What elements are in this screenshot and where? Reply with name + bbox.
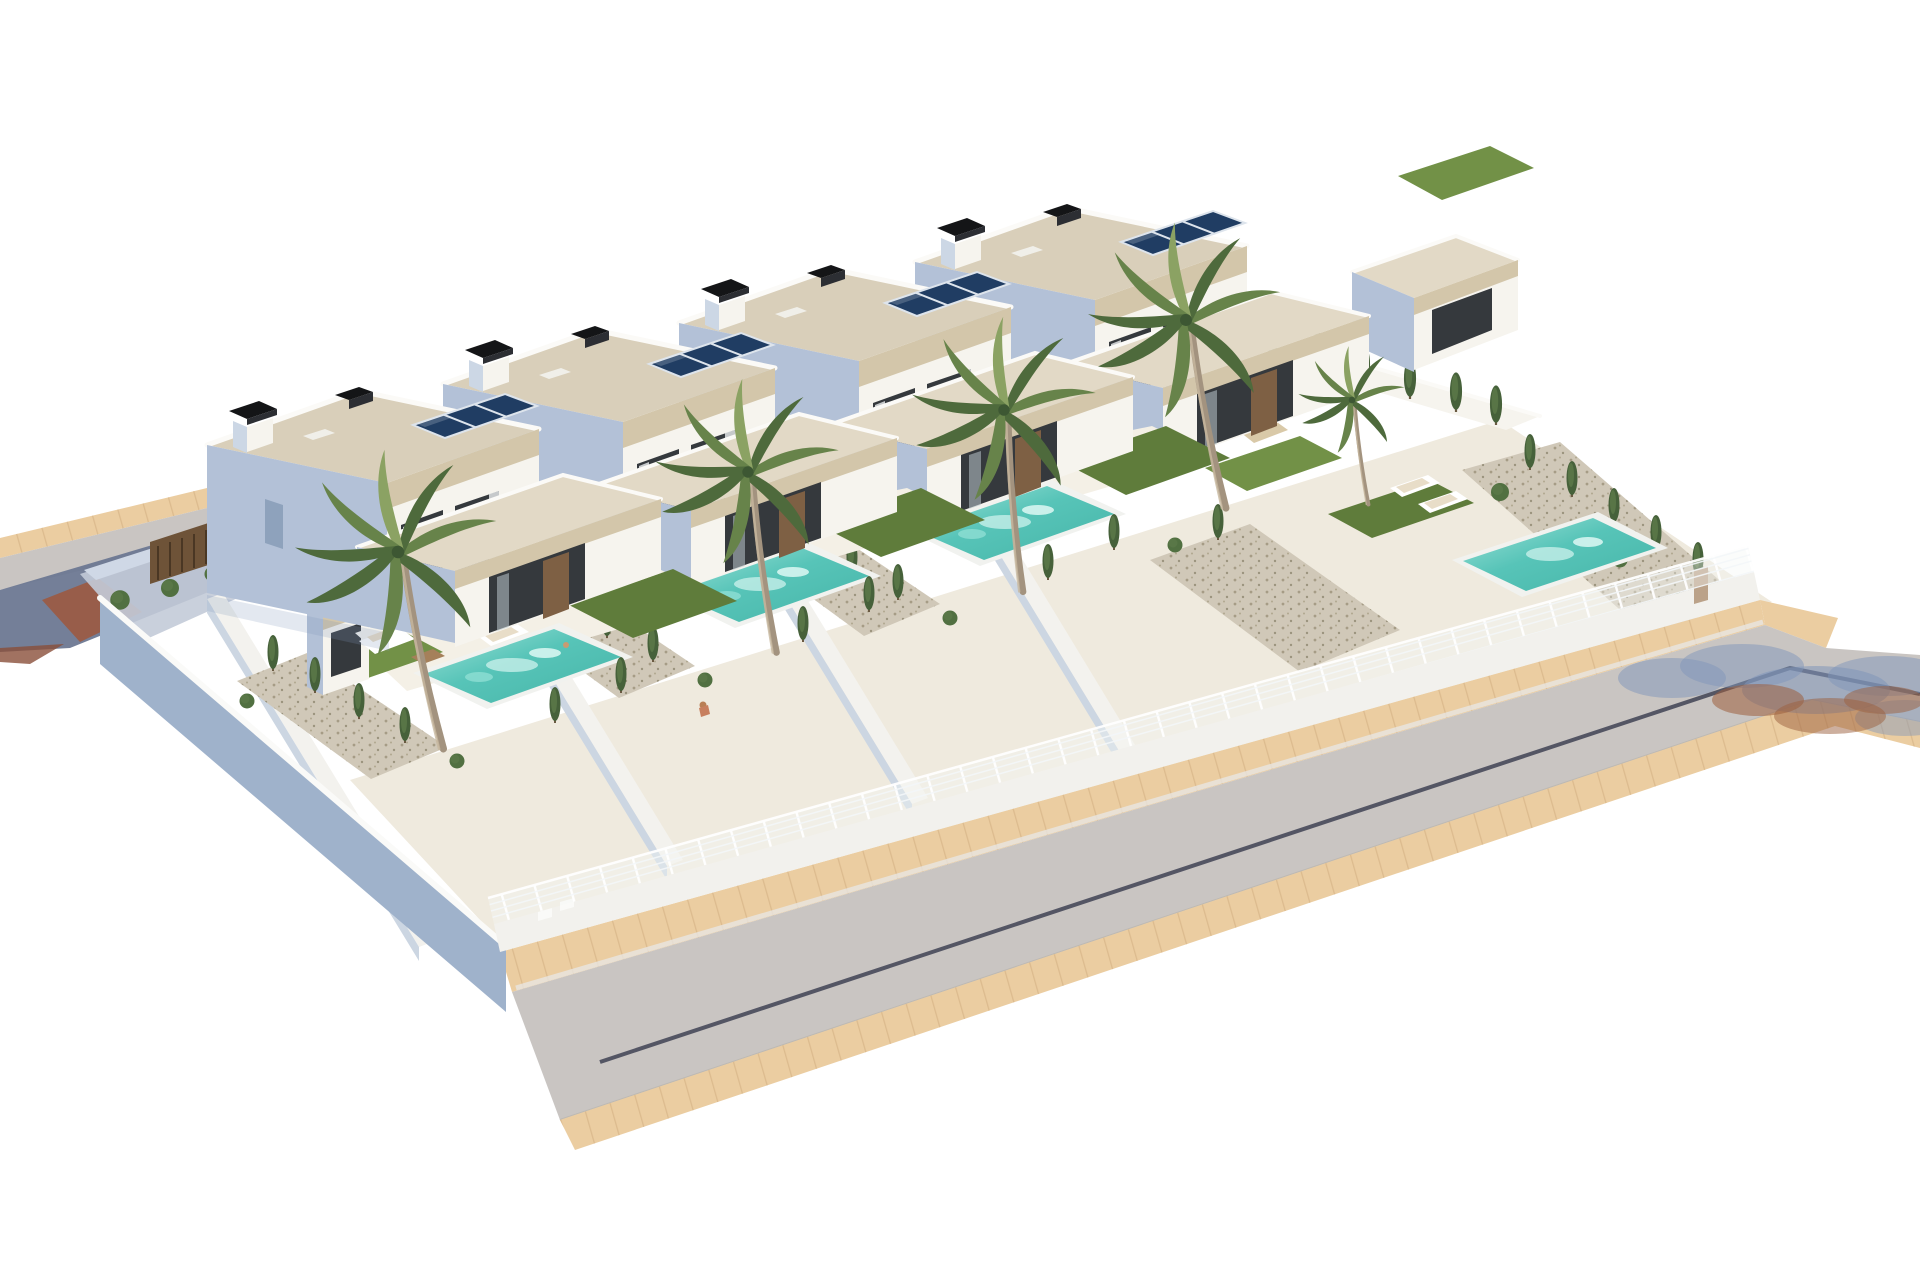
person-lounging [563, 642, 569, 648]
shrub [161, 579, 179, 597]
render-canvas [0, 0, 1920, 1280]
architectural-render [0, 0, 1920, 1280]
